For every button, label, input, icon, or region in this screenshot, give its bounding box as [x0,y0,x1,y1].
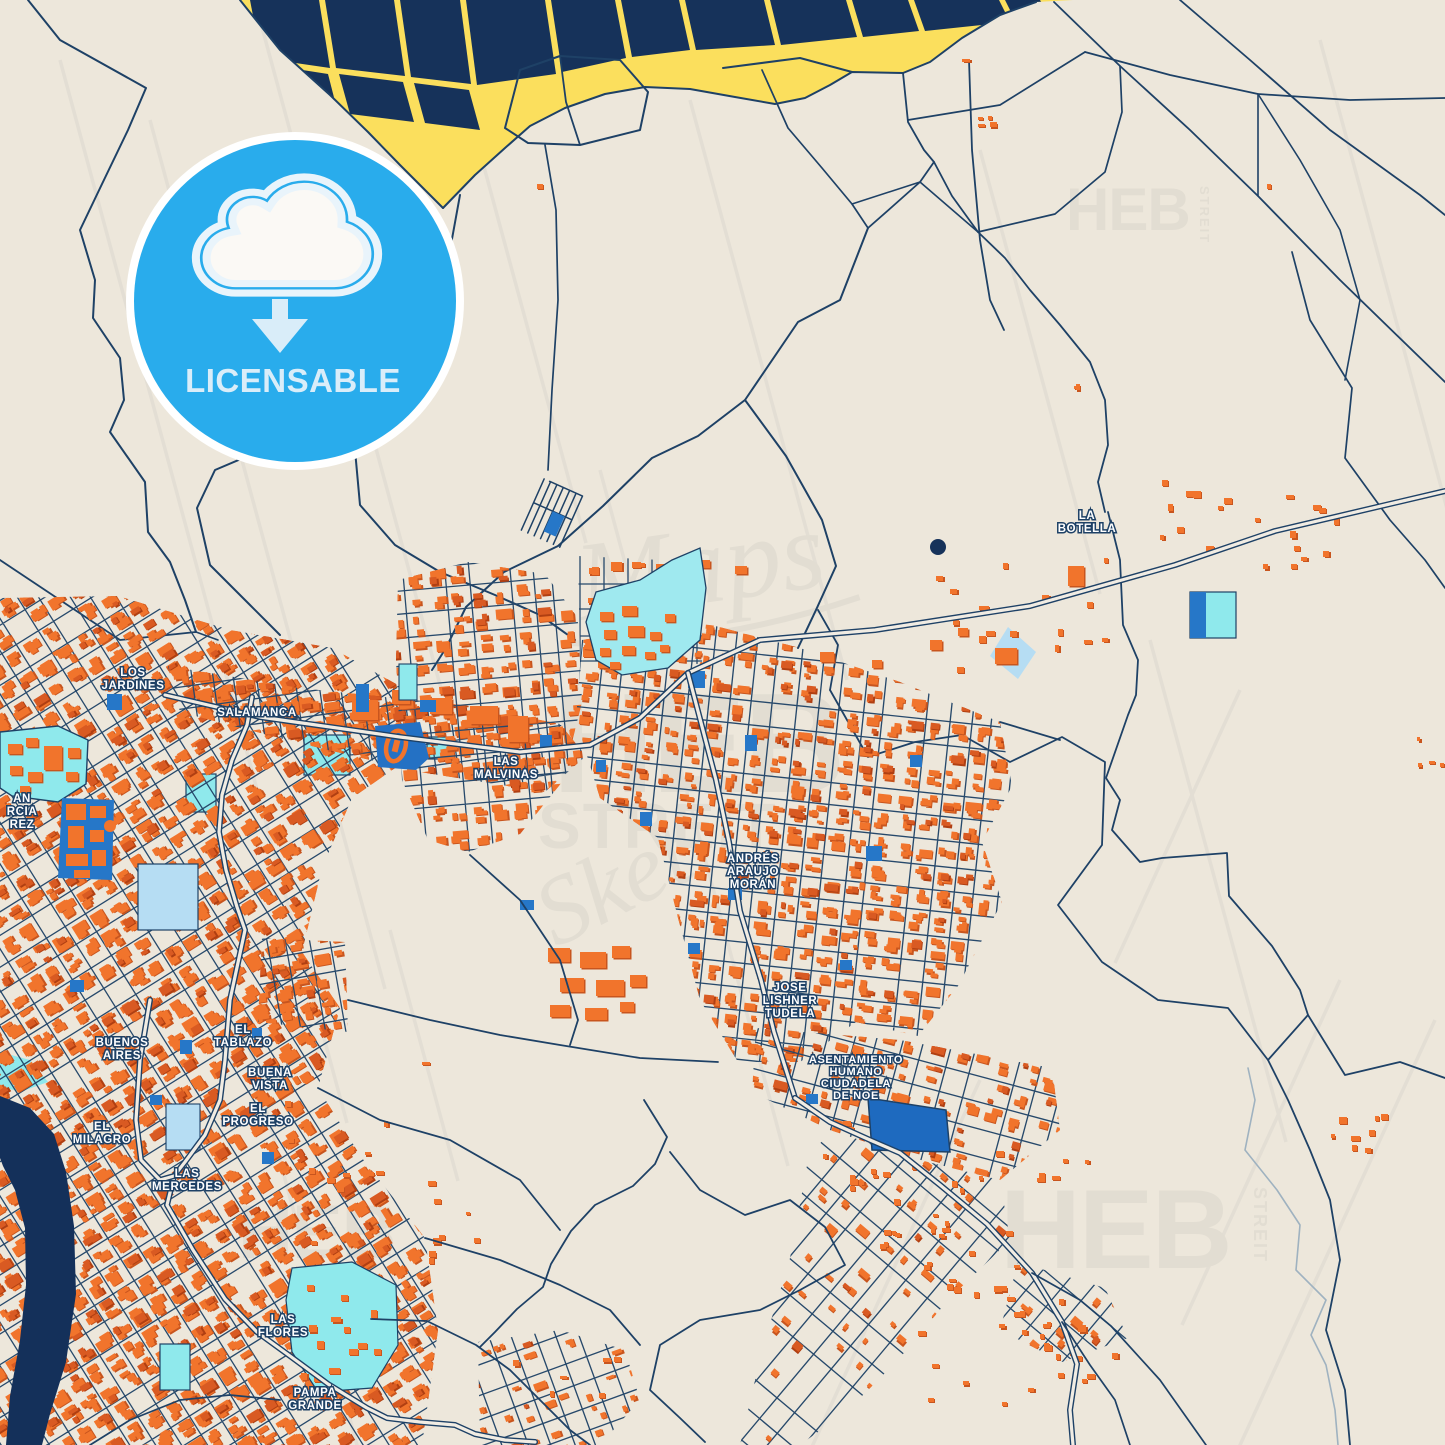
svg-text:BUENOSAIRES: BUENOSAIRES [96,1037,149,1062]
svg-text:LICENSABLE: LICENSABLE [185,362,401,399]
svg-text:HEB: HEB [1066,176,1190,243]
svg-text:ANDRÉSARAUJOMORÁN: ANDRÉSARAUJOMORÁN [727,852,779,891]
svg-text:STREIT: STREIT [1197,186,1212,244]
svg-text:BUENAVISTA: BUENAVISTA [248,1067,292,1092]
svg-text:SALAMANCA: SALAMANCA [217,707,297,719]
svg-text:PAMPAGRANDE: PAMPAGRANDE [288,1387,341,1412]
svg-text:STREIT: STREIT [1250,1187,1270,1263]
